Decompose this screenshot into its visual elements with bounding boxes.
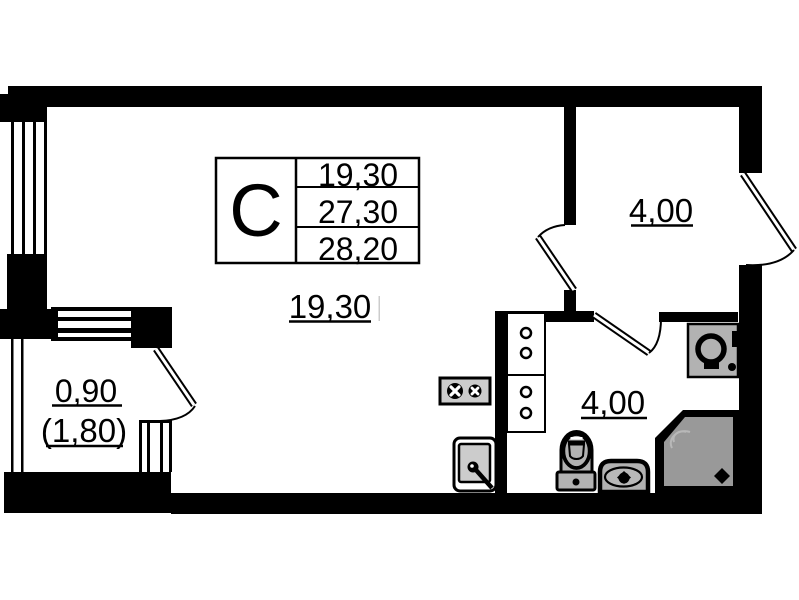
svg-text:28,20: 28,20 <box>318 231 398 267</box>
svg-text:0,90: 0,90 <box>55 373 117 409</box>
svg-text:27,30: 27,30 <box>318 194 398 230</box>
svg-text:19,30: 19,30 <box>289 288 372 325</box>
svg-text:С: С <box>229 169 282 252</box>
svg-text:(1,80): (1,80) <box>41 412 127 449</box>
svg-text:4,00: 4,00 <box>629 192 693 229</box>
svg-text:4,00: 4,00 <box>581 384 645 421</box>
svg-text:19,30: 19,30 <box>318 157 398 193</box>
